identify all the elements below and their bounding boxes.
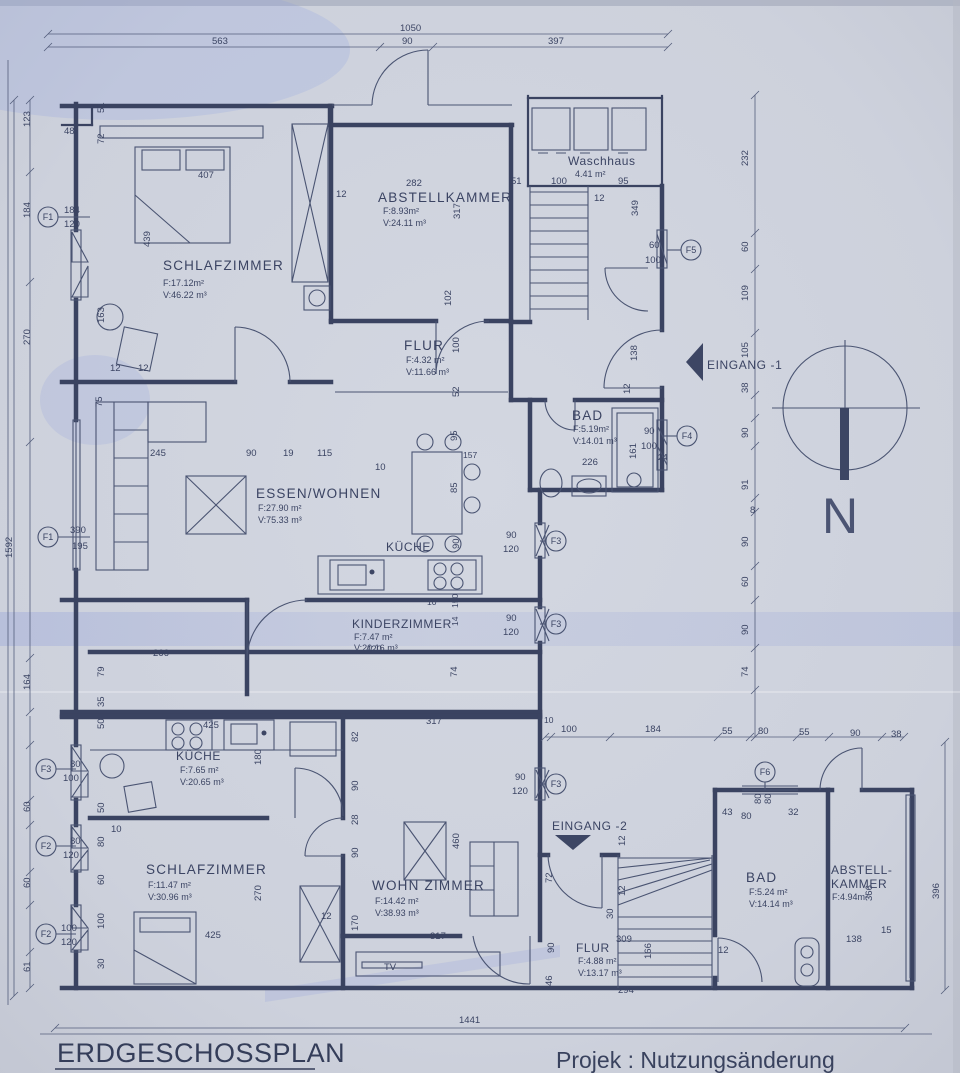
room-volume: V:14.01 m³	[573, 436, 617, 446]
marker-label: F3	[551, 779, 562, 789]
dim-label: 82	[350, 731, 361, 742]
dim-label: 138	[846, 934, 862, 945]
dim-label: 100	[645, 255, 661, 266]
dim-label: 282	[406, 178, 422, 189]
room-area: F:5.19m²	[573, 424, 609, 434]
room-area: F:14.42 m²	[375, 896, 419, 906]
marker-label: F2	[41, 929, 52, 939]
dim-label: 95	[449, 430, 460, 441]
dim-label: 60	[740, 576, 751, 587]
room-name: KÜCHE	[386, 540, 431, 554]
room-volume: V:20.65 m³	[180, 777, 224, 787]
dim-label: 35	[96, 696, 107, 707]
dim-label: 55	[722, 726, 733, 737]
dim-label: 115	[317, 448, 332, 459]
dim-label: 74	[449, 666, 460, 677]
room-volume: V:30.96 m³	[148, 892, 192, 902]
dim-label: 120	[503, 627, 519, 638]
dim-label: 12	[138, 363, 149, 374]
dim-label: 52	[451, 386, 462, 397]
dim-label: 28	[350, 814, 361, 825]
dim-label: 50	[96, 718, 107, 729]
dim-label: 15	[881, 925, 892, 936]
dim-label: 100	[96, 913, 107, 929]
dim-label: 80	[70, 836, 81, 847]
dim-label: 30	[605, 908, 616, 919]
compass-north-label: N	[822, 488, 858, 544]
dim-label: 245	[150, 448, 166, 459]
dim-label: 184	[645, 724, 661, 735]
room-volume: V:13.17 m³	[578, 968, 622, 978]
dim-label: 90	[850, 728, 861, 739]
dim-label: 30	[96, 958, 107, 969]
entrance-2-label: EINGANG -2	[552, 819, 627, 833]
dim-label: 184	[22, 202, 33, 218]
dim-label: 1050	[400, 23, 421, 34]
room-name: WOHN ZIMMER	[372, 878, 485, 893]
dim-label: 163	[96, 307, 107, 323]
room-name: FLUR	[576, 941, 610, 955]
dim-label: 60	[96, 874, 107, 885]
marker-label: F4	[682, 431, 693, 441]
dim-label: 90	[740, 536, 751, 547]
dim-label: 100	[451, 337, 462, 353]
scan-blue-streak	[0, 612, 960, 646]
dim-label: 1441	[459, 1015, 480, 1026]
dim-label: 90	[451, 538, 462, 549]
dim-label: 120	[63, 850, 79, 861]
room-area: F:4.94m²	[832, 892, 868, 902]
dim-label: 120	[512, 786, 528, 797]
dim-label: 120	[503, 544, 519, 555]
room-name: Waschhaus	[568, 154, 636, 168]
dim-label: 232	[740, 150, 751, 166]
dim-label: 79	[96, 666, 107, 677]
tv-label: TV	[384, 962, 397, 973]
dim-label: 10	[544, 715, 554, 725]
room-area: F:27.90 m²	[258, 503, 302, 513]
dim-label: 105	[740, 342, 751, 358]
marker-label: F5	[686, 245, 697, 255]
room-area: F:11.47 m²	[148, 880, 191, 890]
floor-plan-scan: F1 F1 F2 F2 F3 F3 F3 F3 F4 F5 F6 1050 56…	[0, 0, 960, 1073]
dim-label: 80	[763, 793, 774, 804]
dim-label: 270	[22, 329, 33, 345]
dim-label: 43	[722, 807, 733, 818]
dim-label: 51	[511, 176, 522, 187]
dim-label: 60	[740, 241, 751, 252]
dim-label: 90	[506, 530, 517, 541]
dim-label: 38	[891, 729, 902, 740]
dim-label: 60	[22, 801, 33, 812]
dim-label: 12	[594, 193, 605, 204]
dim-label: 90	[515, 772, 526, 783]
dim-label: 91	[740, 479, 751, 490]
marker-label: F1	[43, 212, 54, 222]
dim-label: 270	[253, 885, 264, 901]
dim-label: 80	[70, 759, 81, 770]
dim-label: 120	[61, 937, 77, 948]
dim-label: 90	[740, 624, 751, 635]
room-volume: V:11.66 m³	[406, 367, 449, 377]
dim-label: 195	[72, 541, 88, 552]
dim-label: 72	[96, 133, 107, 144]
dim-label: 12	[336, 189, 347, 200]
room-area: F:17.12m²	[163, 278, 204, 288]
dim-label: 150	[450, 594, 460, 608]
dim-label: 90	[506, 613, 517, 624]
dim-label: 46	[544, 975, 555, 986]
room-name: BAD	[746, 870, 777, 885]
dim-label: 80	[96, 836, 107, 847]
dim-label: 184	[64, 205, 80, 216]
room-name: KAMMER	[831, 877, 887, 891]
room-area: 4.41 m²	[575, 169, 606, 179]
marker-label: F3	[551, 619, 562, 629]
dim-label: 439	[142, 231, 153, 247]
room-volume: V:24.11 m³	[383, 218, 426, 228]
dim-label: 19	[283, 448, 294, 459]
room-name: ABSTELLKAMMER	[378, 190, 512, 205]
dim-label: 12	[617, 885, 628, 896]
compass-needle	[840, 408, 849, 480]
dim-label: 60	[22, 877, 33, 888]
dim-label: 407	[198, 170, 214, 181]
room-area: F:4.88 m²	[578, 956, 617, 966]
room-area: F:7.65 m²	[180, 765, 219, 775]
room-name: SCHLAFZIMMER	[146, 862, 267, 877]
room-volume: V:14.14 m³	[749, 899, 793, 909]
dim-label: 100	[641, 441, 657, 452]
room-name: FLUR	[404, 338, 444, 353]
dim-label: 24	[658, 452, 668, 462]
dim-label: 100	[63, 773, 79, 784]
dim-label: 226	[582, 457, 598, 468]
dim-label: 55	[799, 727, 810, 738]
room-volume: V:20.16 m³	[354, 643, 398, 653]
room-volume: V:38.93 m³	[375, 908, 419, 918]
room-name: BAD	[572, 408, 603, 423]
dim-label: 425	[205, 930, 221, 941]
dim-label: 164	[22, 674, 33, 690]
dim-label: 161	[628, 443, 639, 459]
room-area: F:4.32 m²	[406, 355, 445, 365]
marker-label: F2	[41, 841, 52, 851]
room-area: F:8.93m²	[383, 206, 419, 216]
dim-label: 157	[463, 450, 477, 460]
dim-label: 12	[718, 945, 729, 956]
dim-label: 317	[426, 716, 442, 727]
dim-label: 349	[630, 200, 641, 216]
entrance-1-label: EINGANG -1	[707, 358, 782, 372]
dim-label: 12	[622, 383, 633, 394]
dim-label: 1592	[4, 537, 15, 558]
dim-label: 12	[617, 835, 628, 846]
room-name: KINDERZIMMER	[352, 617, 452, 631]
dim-label: 95	[618, 176, 629, 187]
page-title: ERDGESCHOSSPLAN	[57, 1038, 345, 1068]
room-area: F:7.47 m²	[354, 632, 393, 642]
room-name: SCHLAFZIMMER	[163, 258, 284, 273]
dim-label: 123	[22, 111, 33, 127]
floor-plan-svg: F1 F1 F2 F2 F3 F3 F3 F3 F4 F5 F6 1050 56…	[0, 0, 960, 1073]
dim-label: 90	[402, 36, 413, 47]
dim-label: 100	[551, 176, 567, 187]
dim-label: 74	[740, 666, 751, 677]
room-name: KÜCHE	[176, 749, 221, 763]
dim-label: 170	[350, 915, 361, 931]
dim-label: 90	[350, 847, 361, 858]
dim-label: 90	[546, 942, 557, 953]
dim-label: 80	[758, 726, 769, 737]
marker-label: F3	[551, 536, 562, 546]
room-volume: V:75.33 m³	[258, 515, 302, 525]
marker-label: F6	[760, 767, 771, 777]
dim-label: 109	[740, 285, 751, 301]
dim-label: 460	[451, 833, 462, 849]
project-title: Projek : Nutzungsänderung	[556, 1047, 835, 1073]
dim-label: 38	[740, 382, 751, 393]
marker-label: F3	[41, 764, 52, 774]
dim-label: 120	[64, 219, 80, 230]
dim-label: 100	[561, 724, 577, 735]
dim-label: 60	[649, 240, 660, 251]
dim-label: 390	[70, 525, 86, 536]
dim-label: 317	[452, 203, 463, 219]
dim-label: 10	[427, 597, 437, 607]
dim-label: 32	[788, 807, 799, 818]
dim-label: 309	[616, 934, 632, 945]
dim-label: 266	[153, 648, 169, 659]
dim-label: 317	[430, 931, 446, 942]
dim-label: 50	[96, 802, 107, 813]
dim-label: 12	[110, 363, 121, 374]
dim-label: 90	[246, 448, 257, 459]
dim-label: 51	[96, 102, 107, 113]
dim-label: 85	[449, 482, 460, 493]
dim-label: 100	[61, 923, 77, 934]
dim-label: 425	[203, 720, 219, 731]
dim-label: 396	[931, 883, 942, 899]
dim-label: 90	[644, 426, 655, 437]
dim-label: 138	[629, 345, 640, 361]
marker-label: F1	[43, 532, 54, 542]
dim-label: 10	[111, 824, 122, 835]
dim-label: 80	[741, 811, 752, 822]
dim-label: 166	[643, 943, 654, 959]
dim-label: 294	[618, 985, 634, 996]
dim-label: 8	[750, 505, 755, 516]
dim-label: 12	[321, 911, 332, 922]
dim-label: 563	[212, 36, 228, 47]
dim-label: 90	[740, 427, 751, 438]
room-name: ABSTELL-	[831, 863, 893, 877]
dim-label: 48	[64, 126, 75, 137]
dim-label: 61	[22, 961, 33, 972]
dim-label: 102	[443, 290, 454, 306]
room-volume: V:46.22 m³	[163, 290, 207, 300]
dim-label: 72	[544, 872, 555, 883]
dim-label: 75	[94, 396, 105, 407]
room-area: F:5.24 m²	[749, 887, 788, 897]
dim-label: 10	[375, 462, 386, 473]
dim-label: 397	[548, 36, 564, 47]
dim-label: 180	[253, 749, 264, 765]
dim-label: 90	[350, 780, 361, 791]
room-name: ESSEN/WOHNEN	[256, 486, 381, 501]
